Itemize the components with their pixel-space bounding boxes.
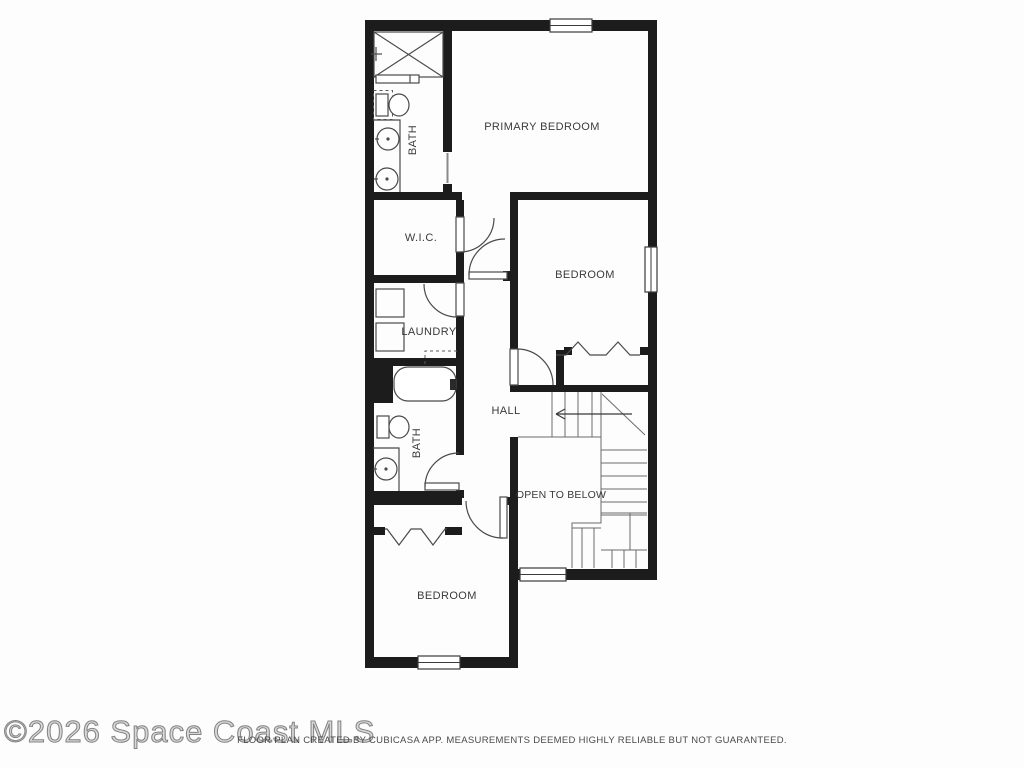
label-hall: HALL (491, 405, 520, 417)
wall (365, 358, 464, 366)
wall (510, 437, 518, 577)
wall (456, 200, 464, 217)
wall (456, 316, 464, 358)
bifold-doors-bottom-bedroom (385, 529, 447, 545)
single-sink-vanity (373, 448, 399, 491)
window (550, 19, 592, 32)
wall (373, 366, 393, 403)
wall (456, 252, 464, 275)
disclaimer-text: FLOOR PLAN CREATED BY CUBICASA APP. MEAS… (0, 735, 1024, 746)
door-wic (456, 217, 494, 252)
wall (456, 366, 464, 455)
label-bath-top: BATH (407, 125, 419, 155)
label-bath-lower: BATH (411, 428, 423, 458)
bathtub (394, 367, 456, 401)
double-sink-vanity (373, 120, 400, 192)
door-bedroom-bottom (466, 497, 507, 538)
wall (510, 192, 657, 200)
open-to-below-border (518, 437, 601, 568)
label-wic: W.I.C. (405, 232, 437, 244)
wall (445, 527, 462, 535)
label-open-to-below: OPEN TO BELOW (516, 489, 606, 501)
door-bedroom-middle (510, 349, 553, 385)
toilet-lower (377, 416, 409, 438)
wall (443, 31, 452, 152)
washer (376, 289, 404, 317)
wall (510, 385, 657, 392)
door-bath-lower (425, 453, 459, 490)
wall (365, 192, 462, 200)
door-laundry (424, 283, 464, 317)
shower (371, 32, 443, 77)
wall (365, 275, 464, 283)
toilet-upper (374, 91, 410, 120)
label-bedroom-middle: BEDROOM (555, 269, 615, 281)
label-bedroom-bottom: BEDROOM (417, 590, 477, 602)
wall (640, 347, 648, 355)
staircase (518, 392, 647, 568)
wall (564, 347, 572, 355)
wall (510, 192, 518, 349)
window (645, 247, 657, 292)
label-laundry: LAUNDRY (401, 326, 456, 338)
shower-door (376, 75, 419, 83)
door-primary-bedroom (469, 239, 507, 279)
wall (365, 20, 374, 668)
window (520, 568, 566, 581)
wall (648, 20, 657, 580)
wall (365, 491, 462, 505)
wall (365, 20, 657, 31)
up-direction-arrow-icon (556, 409, 632, 419)
label-primary-bedroom: PRIMARY BEDROOM (484, 121, 600, 133)
window (418, 656, 460, 669)
dryer (376, 323, 404, 351)
walls (365, 20, 657, 668)
wall (373, 527, 385, 535)
floor-plan: PRIMARY BEDROOM BATH W.I.C. BEDROOM LAUN… (0, 0, 1024, 768)
